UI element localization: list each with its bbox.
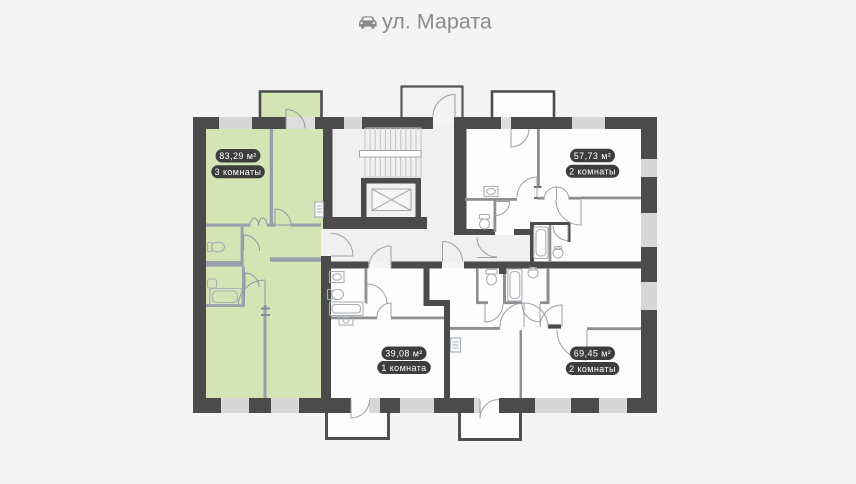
svg-text:2 комнаты: 2 комнаты bbox=[569, 364, 616, 374]
svg-text:39,08 м²: 39,08 м² bbox=[385, 349, 422, 359]
svg-text:1 комната: 1 комната bbox=[381, 363, 426, 373]
svg-text:ул. Марата: ул. Марата bbox=[382, 10, 492, 34]
svg-text:83,29 м²: 83,29 м² bbox=[219, 151, 256, 161]
svg-text:69,45 м²: 69,45 м² bbox=[574, 349, 611, 359]
svg-text:3 комнаты: 3 комнаты bbox=[215, 167, 262, 177]
svg-text:2 комнаты: 2 комнаты bbox=[569, 167, 616, 177]
svg-text:57,73 м²: 57,73 м² bbox=[574, 151, 611, 161]
